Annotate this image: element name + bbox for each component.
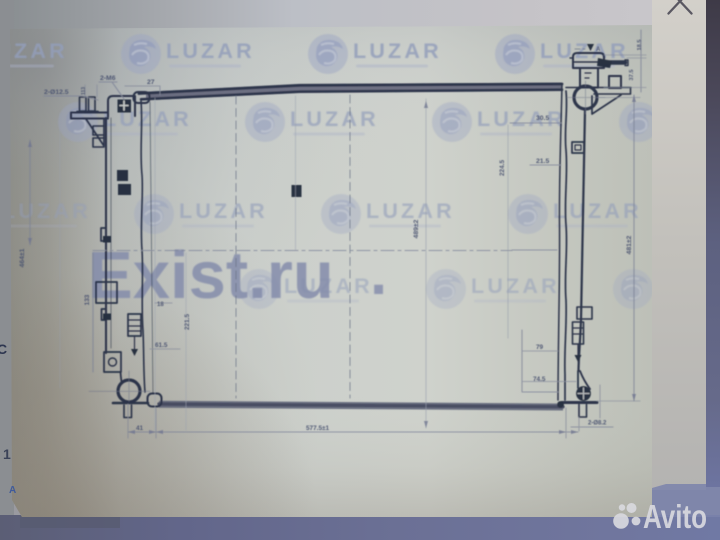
svg-text:A: A (9, 485, 16, 496)
svg-text:2-Ø8.2: 2-Ø8.2 (588, 421, 607, 427)
svg-text:79: 79 (536, 344, 544, 351)
svg-text:C: C (0, 341, 7, 357)
svg-text:21.5: 21.5 (536, 158, 549, 165)
svg-text:224.5: 224.5 (499, 160, 506, 176)
svg-text:464±1: 464±1 (19, 248, 26, 267)
svg-text:A: A (596, 47, 601, 53)
svg-text:.: . (370, 239, 387, 308)
svg-text:113: 113 (81, 87, 87, 95)
svg-text:221.5: 221.5 (184, 314, 191, 330)
svg-text:Avito: Avito (643, 498, 707, 535)
svg-text:74.5: 74.5 (533, 376, 546, 383)
svg-text:27: 27 (147, 79, 155, 86)
svg-text:577.5±1: 577.5±1 (306, 425, 329, 432)
svg-text:481±2: 481±2 (626, 235, 633, 254)
svg-text:41: 41 (136, 425, 144, 432)
svg-text:30.5: 30.5 (536, 115, 549, 122)
svg-text:Exist.ru: Exist.ru (88, 238, 334, 313)
svg-text:37.5: 37.5 (629, 70, 635, 81)
svg-text:1: 1 (3, 446, 11, 462)
svg-text:18.5: 18.5 (637, 40, 643, 51)
svg-text:2-Ø12.5: 2-Ø12.5 (44, 89, 69, 96)
svg-text:18: 18 (157, 302, 164, 308)
svg-text:133: 133 (84, 294, 91, 305)
svg-text:2-M6: 2-M6 (100, 75, 116, 82)
svg-text:61.5: 61.5 (155, 342, 168, 349)
svg-text:489±2: 489±2 (413, 219, 420, 238)
